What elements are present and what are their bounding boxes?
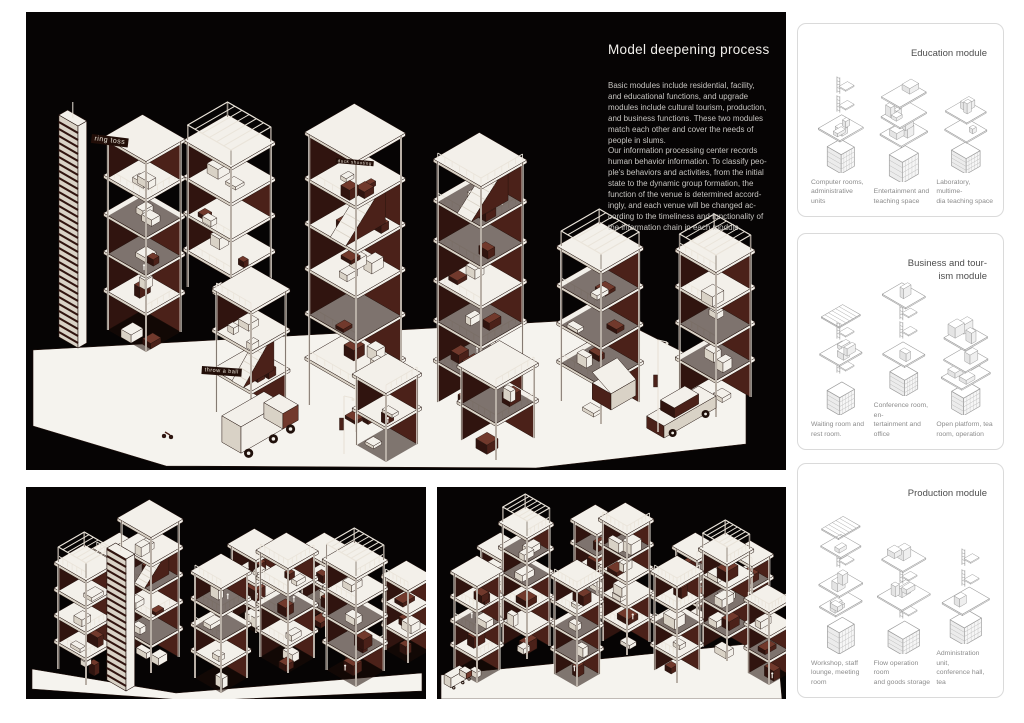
presentation-board: ring toss duck shooting throw a ball Mod… (0, 0, 1024, 723)
module-caption: Flow operation room and goods storage (874, 659, 932, 688)
description-paragraph: Basic modules include residential, facil… (608, 81, 786, 234)
module-caption: Conference room, en- tertainment and off… (874, 401, 932, 439)
module-caption: Waiting room and rest room. (811, 420, 869, 439)
module-caption: Workshop, staff lounge, meeting room (811, 659, 869, 688)
module-caption: Administration unit, conference hall, te… (936, 649, 994, 687)
main-axon-panel: ring toss duck shooting throw a ball Mod… (26, 12, 786, 470)
exploded-axon-drawing (874, 258, 932, 396)
bottom-left-axon-drawing (26, 487, 426, 699)
module-caption: Open platform, tea room, operation (936, 420, 994, 439)
module-caption: Laboratory, multime- dia teaching space (936, 178, 994, 207)
module-column: Laboratory, multime- dia teaching space (936, 57, 994, 207)
module-column: Entertainment and teaching space (874, 66, 932, 206)
module-column: Administration unit, conference hall, te… (936, 494, 994, 687)
bottom-left-axon-panel (26, 487, 426, 699)
bottom-middle-axon-panel (437, 487, 786, 699)
module-caption: Computer rooms, administrative units (811, 178, 869, 207)
module-caption: Entertainment and teaching space (874, 187, 932, 206)
module-card-education: Education module Computer rooms, adminis… (797, 23, 1004, 217)
module-columns: Workshop, staff lounge, meeting room Flo… (811, 494, 994, 687)
module-column: Computer rooms, administrative units (811, 57, 869, 207)
module-column: Flow operation room and goods storage (874, 504, 932, 688)
module-column: Workshop, staff lounge, meeting room (811, 504, 869, 688)
exploded-axon-drawing (811, 504, 869, 654)
exploded-axon-drawing (936, 277, 994, 415)
bottom-middle-axon-drawing (437, 487, 786, 699)
module-column: Open platform, tea room, operation (936, 277, 994, 439)
module-card-production: Production module Workshop, staff lounge… (797, 463, 1004, 698)
module-columns: Computer rooms, administrative units Ent… (811, 57, 994, 207)
module-column: Waiting room and rest room. (811, 277, 869, 439)
page-title: Model deepening process (608, 42, 786, 57)
module-columns: Waiting room and rest room. Conference r… (811, 258, 994, 439)
exploded-axon-drawing (936, 494, 994, 644)
module-card-business-tourism: Business and tour- ism module Waiting ro… (797, 233, 1004, 450)
description-text-block: Model deepening process Basic modules in… (608, 42, 786, 234)
exploded-axon-drawing (874, 504, 932, 654)
exploded-axon-drawing (936, 57, 994, 173)
exploded-axon-drawing (811, 57, 869, 173)
exploded-axon-drawing (874, 66, 932, 182)
module-column: Conference room, en- tertainment and off… (874, 258, 932, 439)
exploded-axon-drawing (811, 277, 869, 415)
